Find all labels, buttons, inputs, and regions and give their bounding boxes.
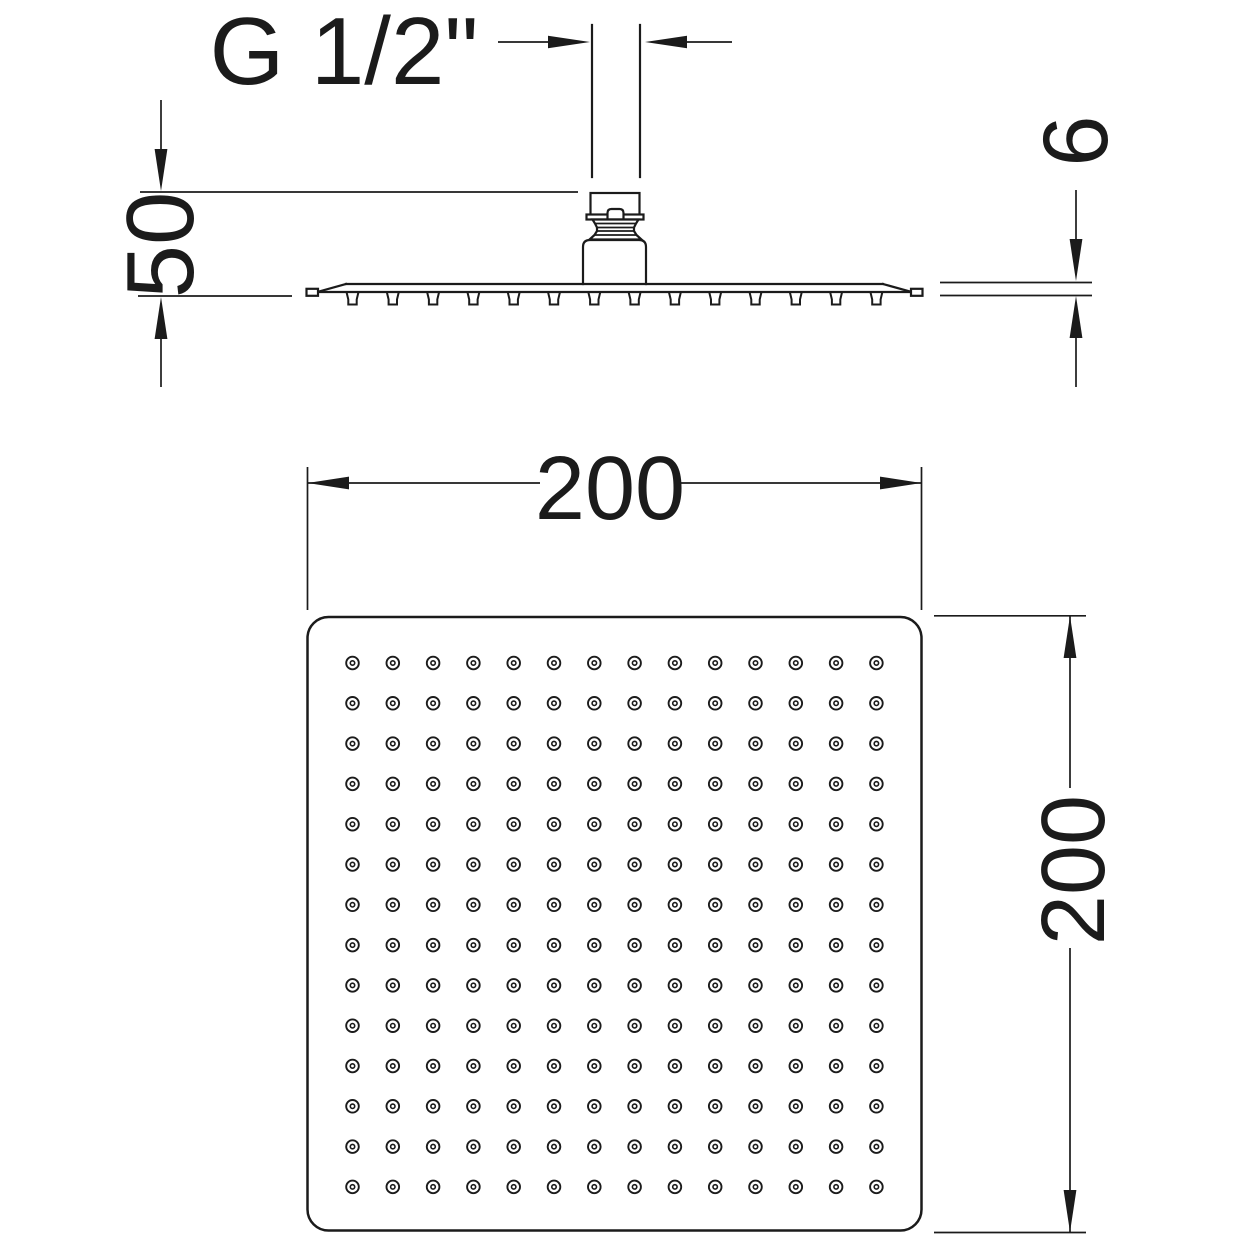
- arrowhead-right-icon: [880, 477, 922, 490]
- nozzle-tooth: [709, 292, 721, 305]
- thickness-dimension: 6: [940, 115, 1127, 387]
- drawing-canvas: G 1/2" 50: [0, 0, 1236, 1236]
- connection-thread-label: G 1/2": [210, 0, 479, 105]
- supply-pipe: [592, 25, 640, 177]
- height-label: 200: [1024, 795, 1124, 945]
- nozzle-tooth: [467, 292, 479, 305]
- arrowhead-right-icon: [548, 36, 590, 48]
- nozzle-tooth: [830, 292, 842, 305]
- nozzle-tooth: [750, 292, 762, 305]
- width-label: 200: [535, 439, 685, 539]
- nozzle-tooth: [629, 292, 641, 305]
- thickness-label: 6: [1025, 115, 1127, 166]
- nozzle-tooth: [669, 292, 681, 305]
- technical-drawing: G 1/2" 50: [0, 0, 1236, 1241]
- nozzle-tooth: [427, 292, 439, 305]
- nozzle-tooth: [508, 292, 520, 305]
- drop-height-dimension: 50: [107, 100, 578, 387]
- width-dimension: 200: [308, 439, 922, 610]
- side-view: G 1/2" 50: [107, 0, 1127, 387]
- nozzle-tooth: [790, 292, 802, 305]
- nozzle-tooth: [548, 292, 560, 305]
- nozzle-tooth: [387, 292, 399, 305]
- arrowhead-left-icon: [645, 36, 687, 48]
- arrowhead-down-icon: [155, 149, 168, 191]
- height-dimension: 200: [934, 616, 1124, 1233]
- arrowhead-down-icon: [1070, 239, 1083, 281]
- arrowhead-up-icon: [155, 297, 168, 339]
- face-view: 200 200: [308, 439, 1125, 1233]
- edge-bevel-right: [883, 284, 911, 292]
- nozzle-tooth: [870, 292, 882, 305]
- fitting-notch: [608, 209, 624, 220]
- fitting-neck: [590, 220, 642, 240]
- drop-height-label: 50: [107, 192, 214, 299]
- nozzle-tooth: [588, 292, 600, 305]
- arrowhead-up-icon: [1064, 616, 1077, 658]
- nozzle-tooth: [347, 292, 359, 305]
- edge-bevel-left: [318, 284, 346, 292]
- arrowhead-up-icon: [1070, 296, 1083, 338]
- nozzle-teeth: [347, 292, 883, 305]
- shower-faceplate: [308, 617, 922, 1231]
- shower-head-profile: [307, 284, 923, 305]
- connector-fitting: [583, 193, 646, 284]
- pipe-width-dimension: [498, 36, 732, 48]
- end-cap-left: [307, 289, 319, 296]
- fitting-body: [583, 240, 646, 284]
- arrowhead-left-icon: [308, 477, 350, 490]
- arrowhead-down-icon: [1064, 1190, 1077, 1232]
- end-cap-right: [911, 289, 923, 296]
